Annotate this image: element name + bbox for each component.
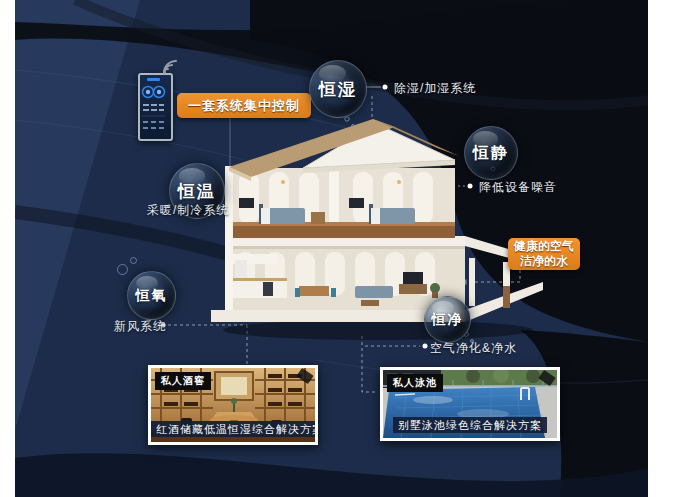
poster: 一套系统集中控制 健康的空气 洁净的水 恒湿 除湿/加湿系统 恒静 降低设备噪音…: [0, 0, 700, 497]
note-noise-reduction: 降低设备噪音: [479, 179, 557, 196]
decor-ring: [117, 264, 128, 275]
wifi-icon: [162, 59, 180, 75]
healthy-air-line1: 健康的空气: [514, 239, 574, 254]
wine-cellar-badge: 私人酒窖: [155, 372, 211, 390]
pool-card: 私人泳池 别墅泳池绿色综合解决方案: [380, 367, 560, 441]
bubble-constant-quiet-label: 恒静: [473, 143, 509, 164]
decor-ring: [130, 257, 137, 264]
note-humidity-system: 除湿/加湿系统: [394, 80, 476, 97]
bubble-constant-humidity-label: 恒湿: [319, 78, 357, 101]
healthy-air-line2: 洁净的水: [520, 254, 568, 269]
healthy-air-callout: 健康的空气 洁净的水: [508, 238, 580, 270]
wine-cellar-photo: 私人酒窖 红酒储藏低温恒湿综合解决方案: [151, 368, 315, 442]
bubble-constant-humidity: 恒湿: [309, 60, 367, 118]
bubble-constant-quiet: 恒静: [464, 126, 518, 180]
bubble-constant-purity: 恒净: [424, 296, 471, 343]
bubble-constant-oxygen: 恒氧: [127, 271, 176, 320]
pool-caption: 别墅泳池绿色综合解决方案: [393, 417, 547, 433]
pool-photo: 私人泳池 别墅泳池绿色综合解决方案: [383, 370, 557, 438]
bubble-constant-oxygen-label: 恒氧: [136, 287, 168, 305]
wine-cellar-caption: 红酒储藏低温恒湿综合解决方案: [151, 421, 315, 437]
wine-cellar-card: 私人酒窖 红酒储藏低温恒湿综合解决方案: [148, 365, 318, 445]
pool-badge: 私人泳池: [387, 374, 443, 392]
smart-control-panel: [138, 73, 173, 141]
bubble-constant-temperature-label: 恒温: [178, 180, 216, 203]
bubble-constant-purity-label: 恒净: [432, 311, 464, 329]
central-control-callout: 一套系统集中控制: [177, 93, 311, 118]
note-air-water-purification: 空气净化&净水: [430, 340, 517, 357]
control-panel-screen: [140, 75, 167, 135]
note-heating-cooling-system: 采暖/制冷系统: [147, 202, 229, 219]
note-fresh-air-system: 新风系统: [114, 318, 166, 335]
